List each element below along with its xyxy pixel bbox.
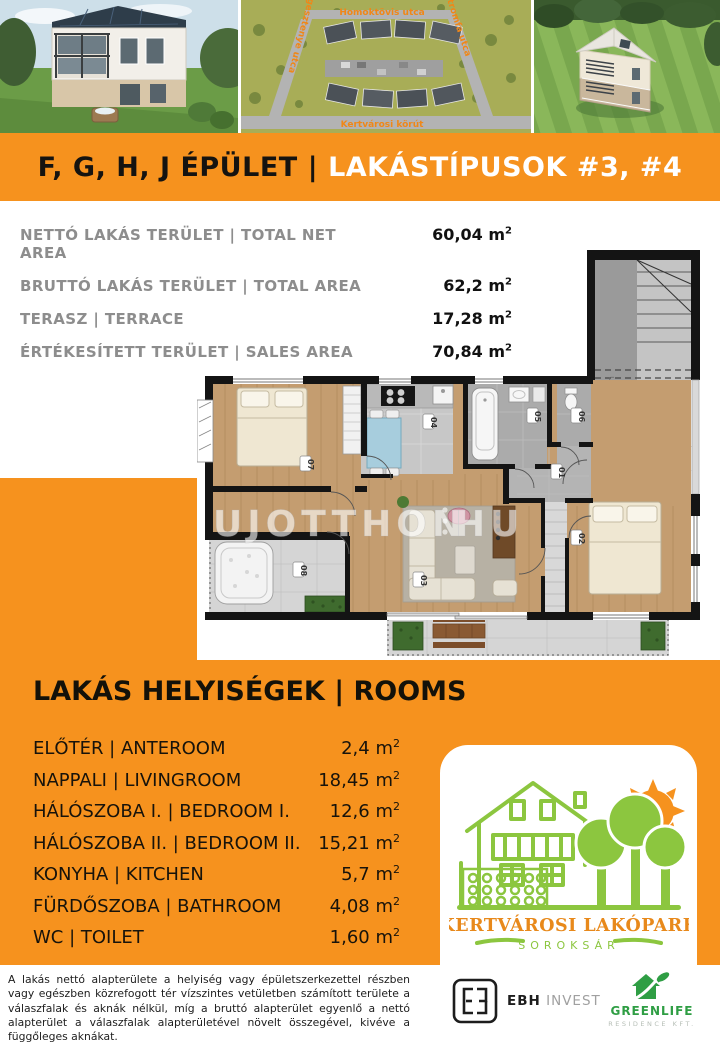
logo-swoosh-right	[615, 940, 661, 943]
render-photo-left	[0, 0, 238, 133]
room-row: HÁLÓSZOBA II. | BEDROOM II. 15,21 m2	[33, 832, 400, 854]
room-value: 15,21 m2	[318, 832, 400, 854]
room-value: 12,6 m2	[330, 800, 400, 822]
orange-side-block	[0, 478, 197, 660]
street-label-top: Homoktövis utca	[339, 8, 424, 18]
badge-wc: 06	[577, 411, 586, 423]
project-logo-title: KERTVÁROSI LAKÓPARK	[449, 915, 689, 936]
room-row: FÜRDŐSZOBA | BATHROOM 4,08 m2	[33, 895, 400, 917]
room-value: 4,08 m2	[330, 895, 400, 917]
room-row: ELŐTÉR | ANTEROOM 2,4 m2	[33, 737, 400, 759]
photo-strip: Homoktövis utca Kertvárosi körút Vadgesz…	[0, 0, 720, 133]
floor-plan: lph	[197, 250, 720, 660]
room-label: KONYHA | KITCHEN	[33, 864, 341, 885]
rooms-title: LAKÁS HELYISÉGEK | ROOMS	[33, 676, 467, 707]
banner-types-text: LAKÁSTÍPUSOK #3, #4	[328, 152, 682, 183]
project-logo: KERTVÁROSI LAKÓPARK SOROKSÁR	[449, 759, 689, 955]
room-label: ELŐTÉR | ANTEROOM	[33, 738, 341, 759]
badge-bedroom2: 02	[577, 533, 586, 544]
room-list: ELŐTÉR | ANTEROOM 2,4 m2 NAPPALI | LIVIN…	[33, 737, 400, 958]
room-label: FÜRDŐSZOBA | BATHROOM	[33, 896, 330, 917]
project-logo-subtitle: SOROKSÁR	[518, 939, 620, 952]
site-plan-photo: Homoktövis utca Kertvárosi körút Vadgesz…	[241, 0, 531, 133]
room-value: 2,4 m2	[341, 737, 400, 759]
room-row: NAPPALI | LIVINGROOM 18,45 m2	[33, 769, 400, 791]
room-row: KONYHA | KITCHEN 5,7 m2	[33, 863, 400, 885]
room-label: NAPPALI | LIVINGROOM	[33, 770, 318, 791]
room-label: HÁLÓSZOBA II. | BEDROOM II.	[33, 833, 318, 854]
room-row: WC | TOILET 1,60 m2	[33, 926, 400, 948]
street-label-bottom: Kertvárosi körút	[341, 120, 425, 130]
room-value: 1,60 m2	[330, 926, 400, 948]
watermark-text-left: UJOTTHON	[213, 504, 467, 545]
title-banner: F, G, H, J ÉPÜLET | LAKÁSTÍPUSOK #3, #4	[0, 133, 720, 201]
ebh-wordmark: EBH INVEST	[507, 993, 601, 1009]
rooms-section: LAKÁS HELYISÉGEK | ROOMS ELŐTÉR | ANTERO…	[0, 660, 720, 965]
badge-anteroom: 01	[557, 467, 566, 479]
plan-section: NETTÓ LAKÁS TERÜLET | TOTAL NET AREA 60,…	[0, 201, 720, 660]
logo-swoosh-left	[477, 940, 523, 943]
badge-kitchen: 04	[429, 417, 438, 429]
render-photo-right	[534, 0, 720, 133]
room-label: WC | TOILET	[33, 927, 330, 948]
project-logo-panel: KERTVÁROSI LAKÓPARK SOROKSÁR	[440, 745, 697, 965]
banner-separator: |	[308, 152, 318, 183]
greenlife-logo: GREENLIFE RESIDENCE KFT.	[598, 970, 706, 1028]
disclaimer-text: A lakás nettó alapterülete a helyiség va…	[8, 973, 410, 1044]
room-row: HÁLÓSZOBA I. | BEDROOM I. 12,6 m2	[33, 800, 400, 822]
room-value: 18,45 m2	[318, 769, 400, 791]
greenlife-subtitle: RESIDENCE KFT.	[608, 1020, 696, 1028]
banner-building-text: F, G, H, J ÉPÜLET	[38, 152, 298, 183]
area-value: 60,04 m2	[387, 225, 512, 244]
ebh-invest-logo: EBH INVEST	[452, 978, 601, 1024]
greenlife-house-icon	[630, 970, 674, 1002]
greenlife-name: GREENLIFE	[610, 1004, 693, 1018]
brochure-page: Homoktövis utca Kertvárosi körút Vadgesz…	[0, 0, 720, 1040]
room-value: 5,7 m2	[341, 863, 400, 885]
footer: A lakás nettó alapterülete a helyiség va…	[0, 965, 720, 1040]
badge-terrace: 08	[299, 565, 308, 577]
room-label: HÁLÓSZOBA I. | BEDROOM I.	[33, 801, 330, 822]
ebh-monogram-icon	[452, 978, 498, 1024]
watermark-dots	[442, 507, 447, 534]
badge-living: 03	[419, 575, 428, 586]
badge-bedroom1: 07	[306, 459, 315, 470]
watermark-text-right: HU	[455, 504, 524, 545]
badge-bathroom: 05	[533, 411, 542, 423]
